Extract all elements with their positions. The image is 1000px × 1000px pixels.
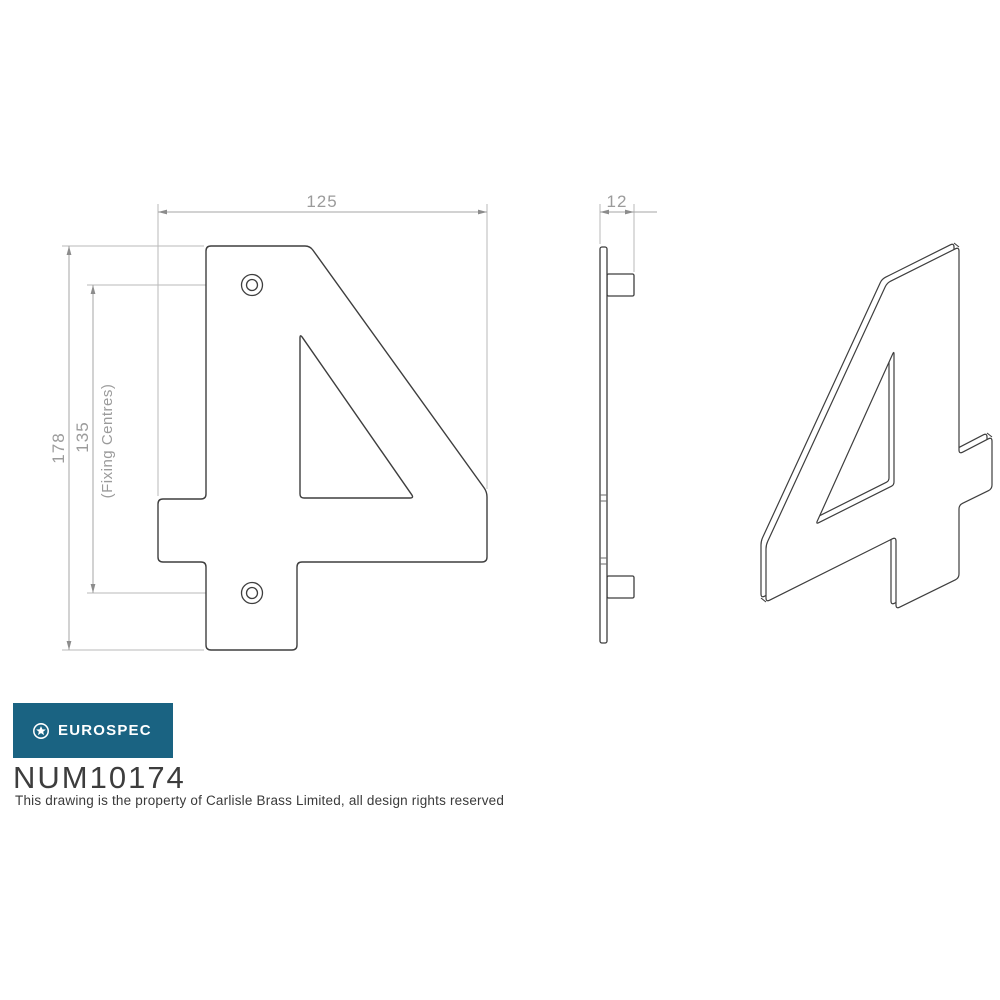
- dim-centres-label: 135: [73, 421, 92, 452]
- dim-thickness-label: 12: [607, 192, 628, 211]
- isometric-view: [761, 243, 992, 608]
- dim-height-label: 178: [49, 432, 68, 463]
- dim-centres-note-label: (Fixing Centres): [99, 384, 116, 499]
- eurospec-logo-label: EUROSPEC: [58, 722, 152, 739]
- technical-drawing-canvas: 125 12 178 135 (Fixing Centres): [0, 0, 1000, 1000]
- extension-lines: [62, 204, 634, 650]
- product-code: NUM10174: [13, 760, 186, 796]
- dimension-lines: [67, 210, 657, 650]
- dim-width-label: 125: [306, 192, 337, 211]
- front-view: [158, 246, 487, 650]
- eurospec-logo: EUROSPEC: [13, 703, 173, 758]
- side-view: [600, 247, 634, 643]
- footer-note: This drawing is the property of Carlisle…: [15, 793, 504, 808]
- eurospec-star-icon: [32, 722, 50, 740]
